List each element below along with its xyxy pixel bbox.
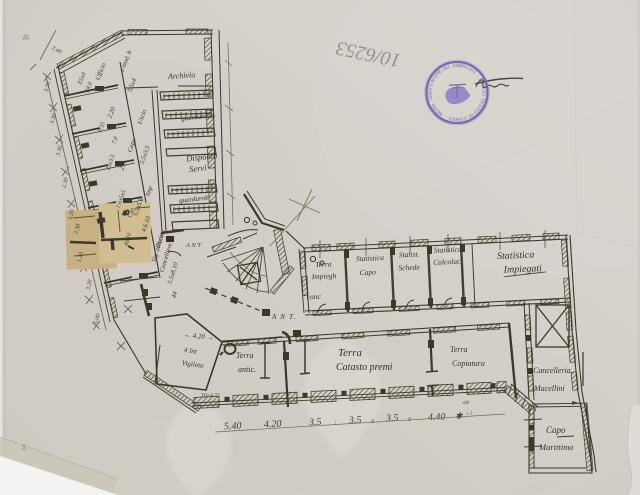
svg-text:Statistica: Statistica — [497, 249, 535, 262]
svg-text:Cancelleria: Cancelleria — [533, 366, 571, 375]
svg-text:↓: ↓ — [470, 410, 473, 416]
svg-text:conc: conc — [306, 292, 321, 302]
svg-text:Catasto premi: Catasto premi — [336, 362, 393, 373]
svg-text:Terra: Terra — [450, 345, 468, 354]
svg-text:Macellini: Macellini — [533, 384, 565, 393]
svg-text:4.40: 4.40 — [428, 412, 446, 424]
svg-text:antic.: antic. — [238, 365, 256, 374]
svg-text:Statist.: Statist. — [399, 249, 420, 259]
svg-text:Marittimo: Marittimo — [538, 442, 573, 452]
svg-text:Terra: Terra — [338, 347, 363, 359]
svg-text:Impiegati: Impiegati — [502, 263, 542, 276]
svg-text:3.5: 3.5 — [385, 413, 399, 425]
svg-text:Impiegh: Impiegh — [311, 271, 337, 281]
svg-text:Capo: Capo — [546, 425, 566, 435]
svg-text:A N T.: A N T. — [271, 313, 297, 321]
svg-text:Servi: Servi — [189, 162, 208, 174]
svg-text:↓: ↓ — [334, 419, 338, 427]
svg-text:Terra: Terra — [236, 351, 254, 360]
svg-text:3.5: 3.5 — [348, 415, 362, 427]
svg-text:Capo: Capo — [359, 267, 376, 277]
svg-text:Copiatura: Copiatura — [452, 359, 485, 368]
svg-text:TO=6.77: TO=6.77 — [201, 394, 220, 399]
svg-text:al¢: al¢ — [463, 401, 470, 406]
svg-text:3.5: 3.5 — [308, 417, 322, 429]
svg-text:Calcolat.: Calcolat. — [433, 257, 461, 267]
svg-text:Schede: Schede — [398, 262, 420, 272]
svg-text:Statistica: Statistica — [356, 253, 385, 263]
svg-text:Statistica: Statistica — [434, 245, 463, 255]
svg-text:Terra: Terra — [315, 259, 332, 269]
svg-text:ANT: ANT — [185, 242, 202, 249]
